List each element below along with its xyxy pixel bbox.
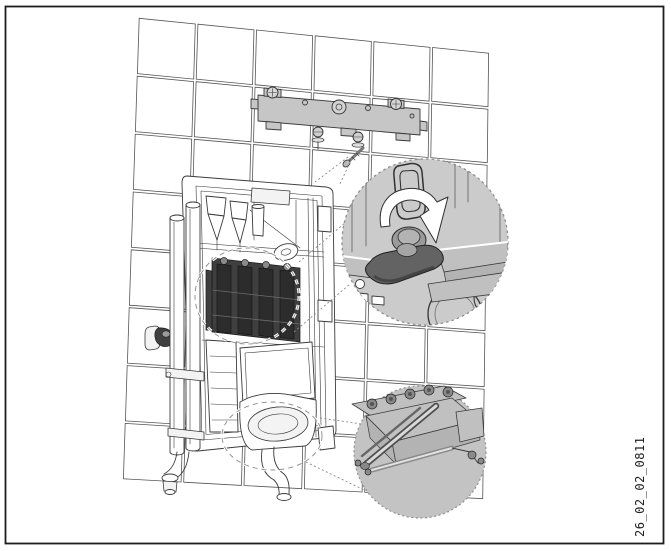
wall-tile (255, 30, 313, 90)
wall-tile (432, 48, 489, 107)
detail-callout-lower (352, 385, 486, 518)
wall-tile (314, 36, 371, 96)
bracket-screw-left (267, 87, 278, 98)
wall-tile (196, 24, 254, 84)
bottom-tray (240, 393, 317, 450)
wall-tile (137, 18, 195, 79)
loose-screw-right (352, 132, 364, 147)
bracket-screw-right (391, 99, 402, 110)
wall-tile (431, 104, 488, 163)
installation-diagram: 26_02_02_0811 (0, 0, 671, 551)
wall-tile (135, 76, 193, 136)
wall-tile (373, 42, 430, 101)
figure-label: 26_02_02_0811 (633, 437, 647, 537)
wall-tile (427, 329, 485, 387)
manual-figure: 26_02_02_0811 (0, 0, 671, 551)
bracket-center-hole (332, 100, 346, 114)
wall-tile (194, 82, 252, 142)
wall-tile (367, 325, 425, 383)
